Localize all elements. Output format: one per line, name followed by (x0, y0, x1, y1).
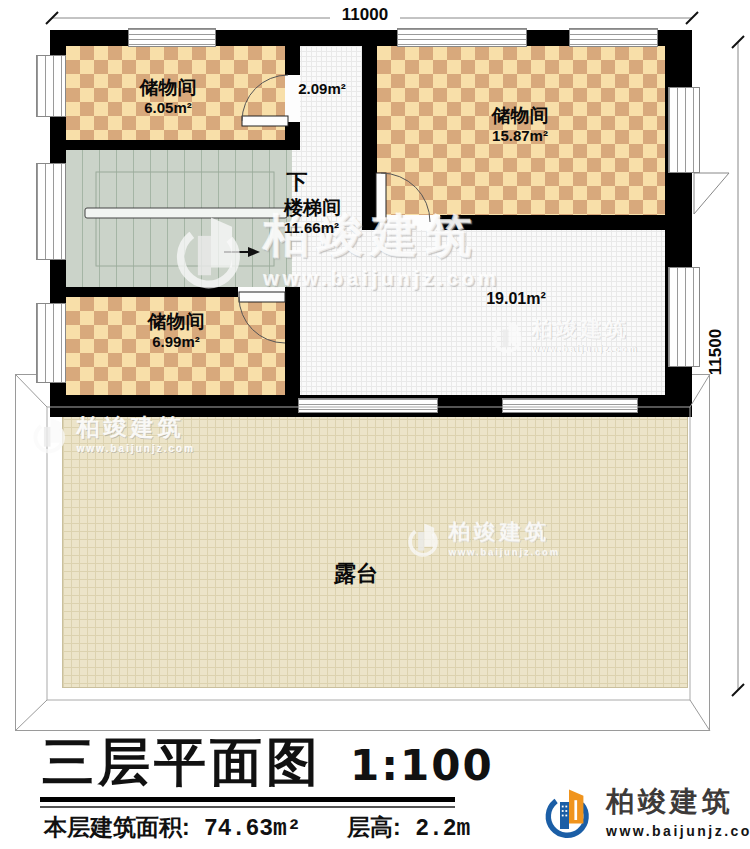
terrace-floor (62, 410, 688, 688)
room-area-storage-b: 15.87m² (460, 128, 580, 145)
window-left-3 (36, 303, 66, 383)
window-left-1 (36, 55, 66, 117)
dim-tick (732, 36, 744, 48)
room-area-hall: 2.09m² (286, 81, 358, 98)
room-area-storage-c: 6.99m² (116, 334, 236, 351)
room-label-storage-c: 储物间 (116, 312, 236, 333)
window-top-1 (128, 28, 216, 47)
brand-url: www.baijunjz.com (606, 823, 750, 839)
floor-area-label: 本层建筑面积: (44, 814, 190, 840)
wall-storage-c-right (285, 287, 300, 395)
wall-stair-bottom (50, 287, 238, 297)
floor-height-label: 层高: (347, 814, 401, 840)
wall-storage-a-bottom (50, 140, 300, 150)
room-label-storage-a: 储物间 (108, 78, 228, 99)
dim-tick (732, 684, 744, 696)
title-underline-thick (40, 797, 455, 802)
window-top-3 (569, 28, 658, 47)
canopy-roof (694, 173, 729, 214)
floor-height-value: 2.2m (415, 816, 470, 842)
wall-storage-a-right-lower (285, 122, 300, 150)
window-right-2 (668, 267, 700, 367)
room-label-terrace: 露台 (320, 562, 392, 586)
brand-logo-icon (542, 782, 596, 840)
door-opening-storage-c (238, 287, 285, 297)
wall-storage-a-right-upper (285, 46, 300, 75)
page-title: 三层平面图 (42, 728, 322, 798)
window-bottom-1 (298, 398, 438, 413)
floor-plan-canvas: 柏竣建筑 www.baijunjz.com 柏竣建筑 www.baijunjz.… (0, 0, 750, 849)
stair-down-label: 下 (284, 170, 310, 193)
dim-top-label: 11000 (330, 5, 400, 25)
window-bottom-2 (502, 398, 638, 413)
title-underline-thin (40, 806, 455, 808)
stairwell (66, 148, 292, 287)
drawing-scale: 1:100 (350, 741, 494, 790)
floor-area-value: 74.63m² (204, 816, 301, 842)
window-top-2 (397, 28, 527, 47)
window-left-2 (36, 163, 66, 260)
brand-logo: 柏竣建筑 www.baijunjz.com (542, 782, 750, 840)
room-area-storage-a: 6.05m² (108, 100, 228, 117)
room-area-stair: 11.66m² (284, 220, 374, 237)
dim-right-label: 11500 (706, 322, 726, 382)
room-label-storage-b: 储物间 (460, 106, 580, 127)
brand-name: 柏竣建筑 (606, 783, 750, 821)
dim-tick (686, 12, 698, 24)
room-area-open: 19.01m² (466, 290, 566, 308)
room-label-stair: 楼梯间 (284, 198, 374, 219)
dim-tick (46, 12, 58, 24)
window-right-1 (668, 87, 700, 173)
wall-storage-b-bottom (440, 215, 665, 230)
door-opening-storage-b (380, 215, 440, 230)
